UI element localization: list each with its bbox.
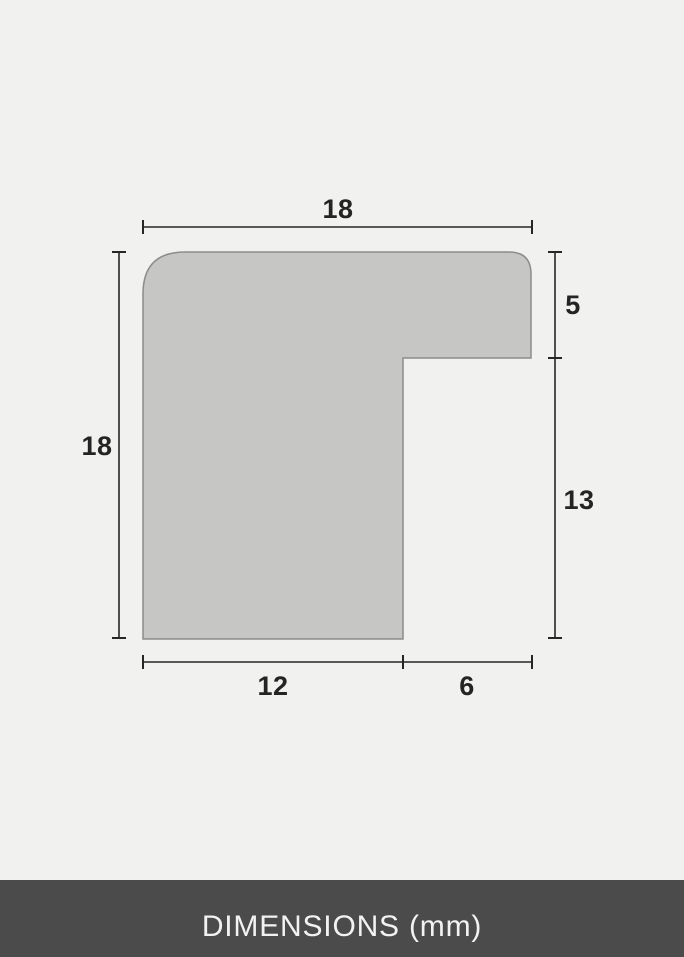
diagram-canvas: 18 18 5 13 [0, 0, 684, 880]
page: 18 18 5 13 [0, 0, 684, 957]
dimension-label-rabbet-width: 6 [459, 671, 475, 701]
dimension-top-width: 18 [143, 194, 532, 234]
profile-dimension-diagram: 18 18 5 13 [0, 0, 684, 880]
dimension-label-total-width: 18 [322, 194, 353, 224]
footer-bar: DIMENSIONS (mm) [0, 880, 684, 957]
dimension-right-heights: 5 13 [548, 252, 595, 638]
footer-title: DIMENSIONS (mm) [202, 910, 482, 944]
dimension-label-rabbet-height: 13 [563, 485, 594, 515]
dimension-label-base-width: 12 [257, 671, 288, 701]
frame-profile-shape [143, 252, 531, 639]
dimension-label-lip-height: 5 [565, 290, 581, 320]
dimension-left-height: 18 [81, 252, 126, 638]
dimension-label-total-height: 18 [81, 431, 112, 461]
dimension-bottom-widths: 12 6 [143, 655, 532, 701]
